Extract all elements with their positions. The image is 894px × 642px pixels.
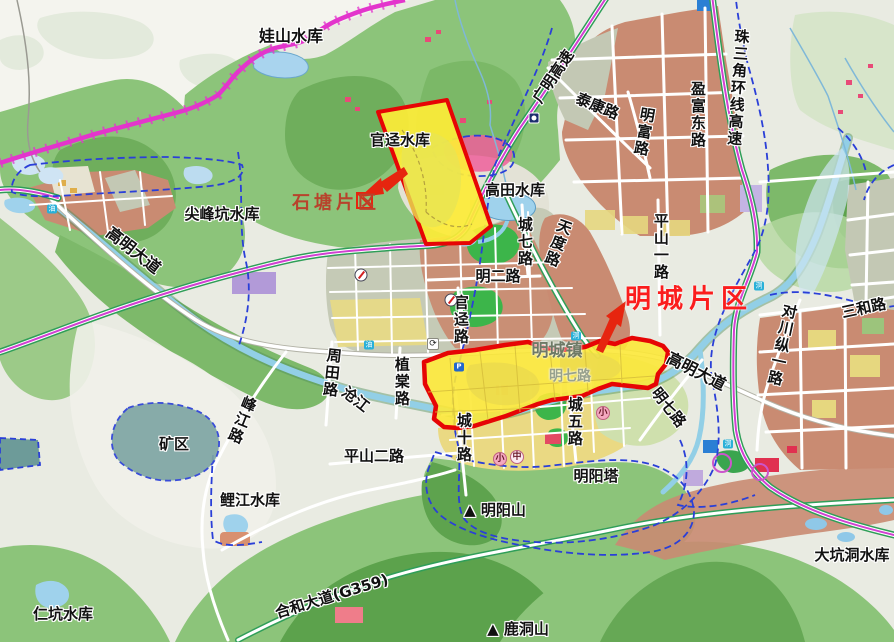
map-terrain <box>0 0 894 642</box>
planning-map: 娃山水库官迳水库石塘片区尖峰坑水库高明大道高田水库广明高速泰康路明富路盈富东路珠… <box>0 0 894 642</box>
